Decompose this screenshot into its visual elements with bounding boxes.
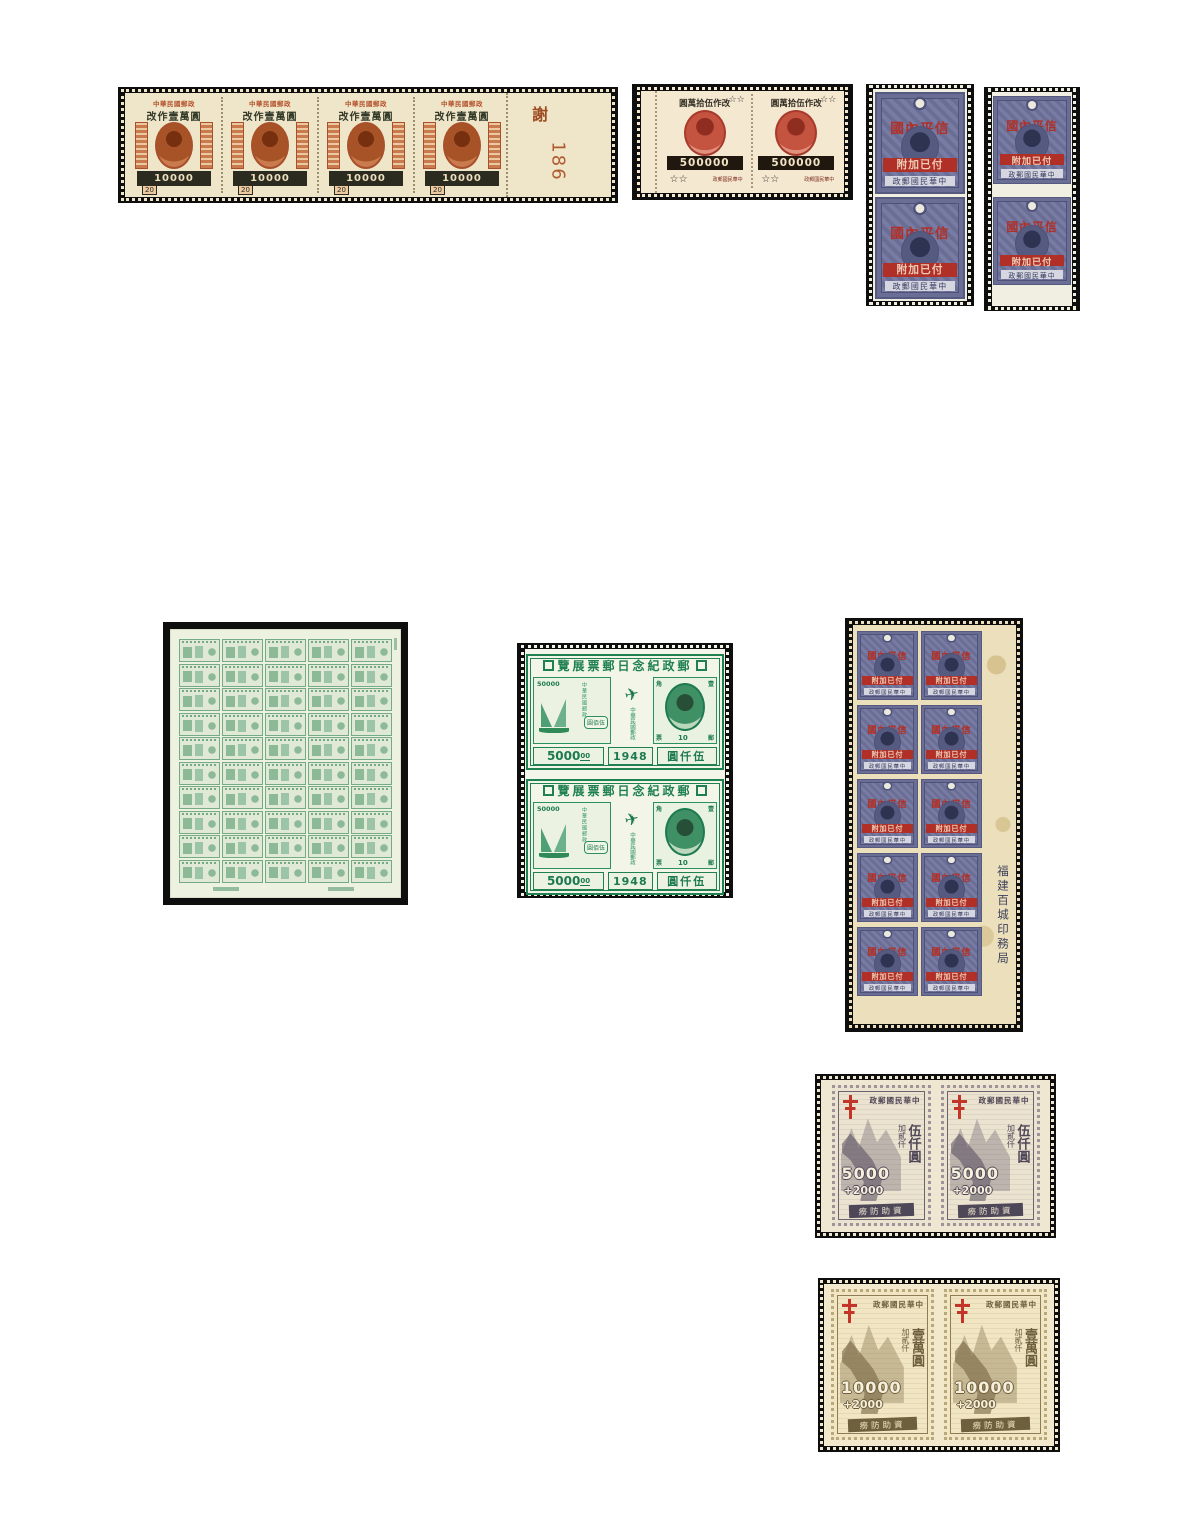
stamp-sun-yat-sen-blue-overprinted: 國內平信 附加已付 政郵國民華中 (921, 779, 982, 848)
stamp-country-header: 中華民國郵政 (130, 98, 218, 108)
stamp-sun-yat-sen-orange: 中華民國郵政 改作壹萬圓 10000 20 (418, 95, 506, 195)
year-box: 1948 (608, 872, 653, 890)
portrait-value: 10 (678, 859, 688, 867)
stamp-bottom-band: 政郵國民華中 (928, 984, 976, 991)
bottom-band-text: 政郵國民華中 (933, 688, 970, 696)
surcharge-value-box: 500000 (758, 156, 834, 170)
sheet-stamp-cell (222, 639, 263, 662)
corner-character: 壹 (708, 679, 714, 688)
sheet-paper (170, 629, 401, 898)
block-paper: 國內平信 附加已付 政郵國民華中 國內平信 附加已付 政郵國民華中 國內平信 附… (853, 625, 1016, 1024)
overprint-bar-text: 附加已付 (871, 750, 903, 760)
surcharge-value: 10000 (154, 173, 194, 184)
sheet-stamp-cell (222, 762, 263, 785)
ship-sail (554, 699, 566, 727)
sheet-stamp-cell (351, 688, 392, 711)
original-value: 20 (142, 185, 157, 195)
stamp-sun-yat-sen-orange: 中華民國郵政 改作壹萬圓 10000 20 (322, 95, 410, 195)
ship-sail (554, 824, 566, 852)
denomination-large-column: 壹萬圓 (910, 1328, 923, 1367)
sheet-stamp-cell (351, 835, 392, 858)
country-header-text: 中華民國郵政 (249, 100, 291, 108)
sheet-stamp-cell (179, 688, 220, 711)
stamp-bottom-band: 政郵國民華中 (864, 910, 912, 917)
strip-paper: 中華民國郵政 改作壹萬圓 10000 20 中華民國郵政 改作壹萬圓 10000… (125, 93, 611, 197)
star-overprint-bottom: ☆☆ (670, 174, 688, 185)
red-overprint-bar: 附加已付 (926, 972, 976, 981)
green-pair-paper: 覽展票郵日念紀政郵 50000 中華民國郵政 圓佰伍 ✈ 中華民國郵政 角 壹 (525, 649, 725, 892)
stamp-bottom-characters: 政郵國民華中 (804, 176, 834, 183)
corner-character: 票 (656, 733, 662, 742)
airplane-icon: ✈ (623, 684, 642, 707)
printer-imprint-left (213, 887, 239, 891)
star-overprint-bottom: ☆☆ (761, 174, 779, 185)
denomination-numeric: 5000 (842, 1164, 891, 1183)
stamp-bottom-band: 政郵國民華中 (1001, 270, 1062, 279)
blue-pair-stamps: 國內平信 附加已付 政郵國民華中 國內平信 附加已付 政郵國民華中 (873, 89, 967, 299)
sun-yat-sen-portrait (775, 110, 817, 156)
sheet-stamp-cell (308, 860, 349, 883)
sheet-stamp-cell (265, 713, 306, 736)
stamp-body: 50000 中華民國郵政 圓佰伍 ✈ 中華民國郵政 角 壹 票 郵 10 (533, 677, 717, 744)
sheet-stamp-cell (308, 786, 349, 809)
blue-pair-stamps: 國內平信 附加已付 政郵國民華中 國內平信 附加已付 政郵國民華中 (992, 92, 1072, 285)
red-overprint-bar: 附加已付 (862, 750, 912, 759)
sheet-stamp-cell (179, 835, 220, 858)
surcharge-value: 500000 (680, 157, 730, 169)
corner-character: 壹 (708, 804, 714, 813)
portrait-area (676, 110, 734, 156)
stamp-sun-yat-sen-blue-overprinted: 國內平信 附加已付 政郵國民華中 (875, 197, 965, 299)
sheet-stamp-cell (222, 835, 263, 858)
sheet-stamp-cell (179, 762, 220, 785)
sheet-stamp-cell (308, 639, 349, 662)
sheet-stamp-cell (351, 737, 392, 760)
red-overprint-bar: 附加已付 (883, 158, 957, 171)
red-overprint-bar: 附加已付 (883, 263, 957, 276)
anti-tb-cross-icon (952, 1095, 967, 1119)
denomination-numeric: 10000 (841, 1378, 902, 1397)
ship-hull (539, 853, 569, 858)
red-overprint-bar: 附加已付 (1000, 255, 1065, 266)
denomination-large-column: 伍仟圓 (907, 1124, 920, 1163)
bottom-band-text: 政郵國民華中 (933, 762, 970, 770)
red-overprint-bar: 附加已付 (862, 972, 912, 981)
surcharge-small-column: 加貳仟 (1014, 1328, 1022, 1367)
stamp-sun-yat-sen-blue-overprinted: 國內平信 附加已付 政郵國民華中 (993, 96, 1070, 184)
stamp-country-header: 政郵國民華中 (870, 1095, 921, 1106)
country-header-text: 中華民國郵政 (441, 100, 483, 108)
overprint-bar-text: 附加已付 (871, 898, 903, 908)
red-pair-stamps: 圓萬拾伍作改 ☆☆ 500000 ☆☆ 政郵國民華中 圓萬拾伍作改 ☆☆ 500… (657, 91, 844, 193)
surcharge-overprint-text: 改作壹萬圓 (322, 108, 410, 123)
junk-ship-inset-stamp: 50000 中華民國郵政 圓佰伍 (533, 677, 611, 744)
overprint-bar-text: 附加已付 (935, 676, 967, 686)
stamp-great-wall-anti-tb-brown: 政郵國民華中 加貳仟 壹萬圓 10000 +2000 癆防助資 (944, 1289, 1047, 1440)
denomination-cents: 00 (580, 752, 590, 761)
bottom-band-text: 政郵國民華中 (933, 910, 970, 918)
sun-yat-sen-portrait (251, 122, 289, 169)
stamp-bottom-band: 政郵國民華中 (864, 984, 912, 991)
stamp-bottom-band: 政郵國民華中 (864, 836, 912, 843)
surcharge-value-box: 10000 (329, 171, 403, 186)
junk-ship-illustration (539, 697, 569, 735)
surcharge-characters: 加貳仟 伍仟圓 (1007, 1124, 1029, 1163)
group-blue-vertical-pair-2: 國內平信 附加已付 政郵國民華中 國內平信 附加已付 政郵國民華中 (984, 87, 1080, 311)
stamp-sun-yat-sen-blue-overprinted: 國內平信 附加已付 政郵國民華中 (857, 631, 918, 700)
sheet-stamp-cell (351, 811, 392, 834)
sun-yat-sen-portrait (665, 808, 705, 856)
surcharge-overprint-text: 改作壹萬圓 (226, 108, 314, 123)
stamp-bottom-band: 政郵國民華中 (1001, 169, 1062, 178)
stamp-country-header: 中華民國郵政 (322, 98, 410, 108)
gray-pair-stamps: 政郵國民華中 加貳仟 伍仟圓 5000 +2000 癆防助資 政郵國民華中 加貳… (821, 1080, 1050, 1226)
exhibition-banner: 覽展票郵日念紀政郵 (528, 781, 722, 800)
strip-stamps: 中華民國郵政 改作壹萬圓 10000 20 中華民國郵政 改作壹萬圓 10000… (125, 93, 506, 197)
left-selvage (641, 91, 657, 193)
stamp-country-header: 中華民國郵政 (226, 98, 314, 108)
sheet-stamp-cell (222, 786, 263, 809)
anti-tb-cross-icon (843, 1095, 858, 1119)
sheet-stamp-cell (179, 664, 220, 687)
sheet-stamp-cell (351, 786, 392, 809)
sheet-stamp-cell (179, 786, 220, 809)
stamp-sun-yat-sen-blue-overprinted: 國內平信 附加已付 政郵國民華中 (921, 705, 982, 774)
sheet-stamp-cell (222, 811, 263, 834)
denomination-characters-box: 圓仟伍 (657, 872, 717, 890)
red-overprint-bar: 附加已付 (926, 676, 976, 685)
surcharge-value: 10000 (442, 173, 482, 184)
denomination-large-column: 伍仟圓 (1016, 1124, 1029, 1163)
blue-pair-paper: 國內平信 附加已付 政郵國民華中 國內平信 附加已付 政郵國民華中 (992, 92, 1072, 306)
denomination-numeric: 10000 (954, 1378, 1015, 1397)
surtax-numeric: +2000 (843, 1398, 883, 1411)
sun-yat-sen-portrait (347, 122, 385, 169)
anti-tb-slogan-band: 癆防助資 (961, 1417, 1030, 1432)
surcharge-small-column: 加貳仟 (1007, 1124, 1015, 1163)
country-header-text: 中華民國郵政 (345, 100, 387, 108)
block-stamps: 國內平信 附加已付 政郵國民華中 國內平信 附加已付 政郵國民華中 國內平信 附… (857, 631, 982, 996)
denomination-value: 5000 (547, 749, 580, 763)
anti-tb-slogan-band: 癆防助資 (848, 1417, 917, 1432)
stamp-sun-yat-sen-red: 圓萬拾伍作改 ☆☆ 500000 ☆☆ 政郵國民華中 (751, 94, 839, 188)
red-overprint-bar: 附加已付 (926, 750, 976, 759)
sheet-stamp-cell (179, 811, 220, 834)
portrait-area (423, 122, 501, 169)
corner-character: 票 (656, 858, 662, 867)
stamp-country-header: 政郵國民華中 (986, 1299, 1037, 1310)
sheet-stamp-cell (308, 688, 349, 711)
surcharge-characters: 加貳仟 壹萬圓 (1014, 1328, 1036, 1367)
surtax-numeric: +2000 (956, 1398, 996, 1411)
gray-pair-paper: 政郵國民華中 加貳仟 伍仟圓 5000 +2000 癆防助資 政郵國民華中 加貳… (821, 1080, 1050, 1232)
stamp-bottom-band: 政郵國民華中 (864, 688, 912, 695)
surcharge-value-box: 500000 (667, 156, 743, 170)
stamp-great-wall-anti-tb-brown: 政郵國民華中 加貳仟 壹萬圓 10000 +2000 癆防助資 (831, 1289, 934, 1440)
stamp-sun-yat-sen-blue-overprinted: 國內平信 附加已付 政郵國民華中 (921, 853, 982, 922)
sheet-stamp-cell (265, 811, 306, 834)
sheet-stamp-cell (265, 860, 306, 883)
stamp-bottom-band: 政郵國民華中 (885, 281, 954, 291)
sun-yat-sen-portrait (155, 122, 193, 169)
selvage-character: 謝 (532, 101, 548, 125)
sheet-stamp-cell (222, 860, 263, 883)
sheet-stamp-cell (351, 639, 392, 662)
overprint-bar-text: 附加已付 (935, 972, 967, 982)
blue-pair-paper: 國內平信 附加已付 政郵國民華中 國內平信 附加已付 政郵國民華中 (873, 89, 967, 301)
overprint-bar-text: 附加已付 (935, 898, 967, 908)
bottom-band-text: 政郵國民華中 (933, 836, 970, 844)
stamp-album-scan: { "page": {"background": "#ffffff", "des… (0, 0, 1194, 1539)
stamp-great-wall-anti-tb-gray: 政郵國民華中 加貳仟 伍仟圓 5000 +2000 癆防助資 (832, 1085, 931, 1226)
sheet-stamp-grid (179, 639, 392, 883)
airplane-icon: ✈ (623, 809, 642, 832)
sheet-stamp-cell (265, 762, 306, 785)
red-overprint-bar: 附加已付 (926, 898, 976, 907)
original-value: 20 (334, 185, 349, 195)
red-pair-paper: 圓萬拾伍作改 ☆☆ 500000 ☆☆ 政郵國民華中 圓萬拾伍作改 ☆☆ 500… (641, 91, 844, 193)
surcharge-value-box: 10000 (233, 171, 307, 186)
stamp-bottom-band: 政郵國民華中 (928, 836, 976, 843)
group-orange-strip-of-four: 中華民國郵政 改作壹萬圓 10000 20 中華民國郵政 改作壹萬圓 10000… (118, 87, 618, 203)
surcharge-small-column: 加貳仟 (901, 1328, 909, 1367)
stamp-sun-yat-sen-blue-overprinted: 國內平信 附加已付 政郵國民華中 (857, 927, 918, 996)
sheet-stamp-cell (265, 664, 306, 687)
sun-emblem-icon (1028, 202, 1036, 210)
group-anti-tb-gray-pair: 政郵國民華中 加貳仟 伍仟圓 5000 +2000 癆防助資 政郵國民華中 加貳… (815, 1074, 1056, 1238)
overprint-bar-text: 附加已付 (1012, 254, 1053, 268)
center-panel: ✈ 中華民國郵政 (614, 802, 650, 869)
denomination-numeric-box: 500000 (533, 872, 604, 890)
sun-yat-sen-portrait (443, 122, 481, 169)
overprint-bar-text: 附加已付 (935, 824, 967, 834)
denomination-large-column: 壹萬圓 (1023, 1328, 1036, 1367)
stamp-postal-day-exhibition-1948: 覽展票郵日念紀政郵 50000 中華民國郵政 圓佰伍 ✈ 中華民國郵政 角 壹 (526, 779, 724, 895)
portrait-area (767, 110, 825, 156)
sheet-stamp-cell (265, 688, 306, 711)
junk-ship-inset-stamp: 50000 中華民國郵政 圓佰伍 (533, 802, 611, 869)
sheet-stamp-cell (179, 713, 220, 736)
overprint-bar-text: 附加已付 (871, 972, 903, 982)
sheet-stamp-cell (222, 713, 263, 736)
stamp-sun-yat-sen-blue-overprinted: 國內平信 附加已付 政郵國民華中 (921, 927, 982, 996)
red-overprint-bar: 附加已付 (862, 824, 912, 833)
red-overprint-bar: 附加已付 (926, 824, 976, 833)
overprint-bar-text: 附加已付 (1012, 153, 1053, 167)
sheet-stamp-cell (308, 713, 349, 736)
surcharge-characters: 加貳仟 壹萬圓 (901, 1328, 923, 1367)
center-column-text: 中華民國郵政 (628, 832, 636, 865)
sheet-stamp-cell (222, 688, 263, 711)
anti-tb-slogan-band: 癆防助資 (957, 1203, 1022, 1218)
surcharge-overprint-text: 改作壹萬圓 (130, 108, 218, 123)
ship-sail (541, 828, 552, 852)
exhibition-banner: 覽展票郵日念紀政郵 (528, 656, 722, 675)
denomination-cents: 00 (580, 877, 590, 886)
denomination-numeric-box: 500000 (533, 747, 604, 765)
sheet-stamp-cell (351, 713, 392, 736)
year-box: 1948 (608, 747, 653, 765)
bottom-band-text: 政郵國民華中 (869, 836, 906, 844)
plate-number: 186 (548, 141, 569, 181)
bottom-band-text: 政郵國民華中 (893, 176, 948, 187)
center-panel: ✈ 中華民國郵政 (614, 677, 650, 744)
stamp-sun-yat-sen-blue-overprinted: 國內平信 附加已付 政郵國民華中 (857, 705, 918, 774)
stamp-sun-yat-sen-blue-overprinted: 國內平信 附加已付 政郵國民華中 (993, 197, 1070, 285)
commemorative-column-text: 中華民國郵政 (581, 807, 588, 843)
bottom-band-text: 政郵國民華中 (869, 762, 906, 770)
stamp-great-wall-anti-tb-gray: 政郵國民華中 加貳仟 伍仟圓 5000 +2000 癆防助資 (941, 1085, 1040, 1226)
group-red-surcharge-pair: 圓萬拾伍作改 ☆☆ 500000 ☆☆ 政郵國民華中 圓萬拾伍作改 ☆☆ 500… (632, 84, 853, 200)
surcharge-value-box: 10000 (137, 171, 211, 186)
stamp-bottom-band: 政郵國民華中 (928, 762, 976, 769)
sun-yat-sen-portrait (665, 683, 705, 731)
inset-value: 50000 (537, 805, 560, 813)
portrait-inset-stamp: 角 壹 票 郵 10 (653, 677, 717, 744)
stamp-bottom-characters: 政郵國民華中 (713, 176, 743, 183)
stamp-country-header: 中華民國郵政 (418, 98, 506, 108)
overprint-bar-text: 附加已付 (896, 157, 943, 172)
stamp-country-header: 政郵國民華中 (873, 1299, 924, 1310)
bottom-band-text: 政郵國民華中 (893, 281, 948, 292)
printer-imprint-right (328, 887, 354, 891)
denomination-value: 5000 (547, 874, 580, 888)
surcharge-value: 10000 (250, 173, 290, 184)
junk-ship-illustration (539, 822, 569, 860)
stamp-sun-yat-sen-red: 圓萬拾伍作改 ☆☆ 500000 ☆☆ 政郵國民華中 (662, 94, 748, 188)
stamp-sun-yat-sen-blue-overprinted: 國內平信 附加已付 政郵國民華中 (857, 853, 918, 922)
portrait-value: 10 (678, 734, 688, 742)
red-overprint-bar: 附加已付 (862, 676, 912, 685)
sheet-stamp-cell (222, 664, 263, 687)
stamp-country-header: 政郵國民華中 (979, 1095, 1030, 1106)
surcharge-value-box: 10000 (425, 171, 499, 186)
sheet-stamp-cell (265, 835, 306, 858)
sheet-stamp-cell (308, 835, 349, 858)
stamp-bottom-row: 500000 1948 圓仟伍 (533, 747, 717, 765)
bottom-band-text: 政郵國民華中 (1008, 270, 1055, 280)
group-green-full-sheet (163, 622, 408, 905)
corner-character: 角 (656, 804, 662, 813)
surcharge-small-column: 加貳仟 (898, 1124, 906, 1163)
sheet-stamp-cell (265, 737, 306, 760)
sheet-stamp-cell (351, 762, 392, 785)
bottom-band-text: 政郵國民華中 (1008, 169, 1055, 179)
surcharge-characters: 加貳仟 伍仟圓 (898, 1124, 920, 1163)
stamp-bottom-band: 政郵國民華中 (928, 910, 976, 917)
sheet-stamp-cell (179, 639, 220, 662)
anti-tb-slogan-band: 癆防助資 (848, 1203, 913, 1218)
sheet-stamp-cell (265, 786, 306, 809)
surcharge-overprint-text: 改作壹萬圓 (418, 108, 506, 123)
denomination-numeric: 5000 (951, 1164, 1000, 1183)
group-blue-vertical-pair-1: 國內平信 附加已付 政郵國民華中 國內平信 附加已付 政郵國民華中 (866, 84, 974, 306)
anti-tb-cross-icon (842, 1299, 857, 1323)
original-value: 20 (430, 185, 445, 195)
sheet-stamp-cell (179, 860, 220, 883)
star-overprint-top: ☆☆ (820, 95, 836, 105)
commemorative-column-text: 中華民國郵政 (581, 682, 588, 718)
bottom-band-text: 政郵國民華中 (933, 984, 970, 992)
denomination-characters-box: 圓仟伍 (657, 747, 717, 765)
red-overprint-bar: 附加已付 (1000, 154, 1065, 165)
overprint-bar-text: 附加已付 (896, 262, 943, 277)
sheet-stamp-cell (351, 664, 392, 687)
group-fujian-block-of-ten: 國內平信 附加已付 政郵國民華中 國內平信 附加已付 政郵國民華中 國內平信 附… (845, 618, 1023, 1032)
star-overprint-top: ☆☆ (729, 95, 745, 105)
red-overprint-bar: 附加已付 (862, 898, 912, 907)
sheet-stamp-cell (179, 737, 220, 760)
sheet-stamp-cell (308, 664, 349, 687)
sheet-stamp-cell (308, 762, 349, 785)
ship-hull (539, 728, 569, 733)
anti-tb-cross-icon (955, 1299, 970, 1323)
sheet-selvage-tab: 謝 186 (506, 93, 611, 197)
overprint-bar-text: 附加已付 (935, 750, 967, 760)
stamp-postal-day-exhibition-1948: 覽展票郵日念紀政郵 50000 中華民國郵政 圓佰伍 ✈ 中華民國郵政 角 壹 (526, 654, 724, 770)
brown-pair-stamps: 政郵國民華中 加貳仟 壹萬圓 10000 +2000 癆防助資 政郵國民華中 加… (824, 1284, 1054, 1440)
original-value: 20 (238, 185, 253, 195)
stamp-bottom-band: 政郵國民華中 (864, 762, 912, 769)
stamp-sun-yat-sen-blue-overprinted: 國內平信 附加已付 政郵國民華中 (875, 92, 965, 194)
sheet-stamp-cell (351, 860, 392, 883)
sun-yat-sen-portrait (684, 110, 726, 156)
bottom-band-text: 政郵國民華中 (869, 910, 906, 918)
country-header-text: 中華民國郵政 (153, 100, 195, 108)
sheet-stamp-cell (308, 811, 349, 834)
portrait-area (231, 122, 309, 169)
sheet-stamp-cell (308, 737, 349, 760)
printer-margin-inscription: 福建百城印務局 (995, 865, 1011, 967)
stamp-body: 50000 中華民國郵政 圓佰伍 ✈ 中華民國郵政 角 壹 票 郵 10 (533, 802, 717, 869)
surtax-numeric: +2000 (844, 1184, 884, 1197)
stamp-sun-yat-sen-blue-overprinted: 國內平信 附加已付 政郵國民華中 (921, 631, 982, 700)
overprint-bar-text: 附加已付 (871, 824, 903, 834)
sheet-stamp-cell (222, 737, 263, 760)
portrait-inset-stamp: 角 壹 票 郵 10 (653, 802, 717, 869)
corner-character: 角 (656, 679, 662, 688)
stamp-bottom-row: 500000 1948 圓仟伍 (533, 872, 717, 890)
corner-character: 郵 (708, 733, 714, 742)
ship-sail (541, 703, 552, 727)
stamp-bottom-band: 政郵國民華中 (885, 176, 954, 186)
sun-emblem-icon (1028, 101, 1036, 109)
brown-pair-paper: 政郵國民華中 加貳仟 壹萬圓 10000 +2000 癆防助資 政郵國民華中 加… (824, 1284, 1054, 1446)
sheet-margin-mark (394, 638, 397, 650)
stamp-sun-yat-sen-orange: 中華民國郵政 改作壹萬圓 10000 20 (226, 95, 314, 195)
green-pair-stamps: 覽展票郵日念紀政郵 50000 中華民國郵政 圓佰伍 ✈ 中華民國郵政 角 壹 (525, 649, 725, 900)
bottom-band-text: 政郵國民華中 (869, 984, 906, 992)
surtax-numeric: +2000 (953, 1184, 993, 1197)
portrait-area (327, 122, 405, 169)
inset-value: 50000 (537, 680, 560, 688)
overprint-bar-text: 附加已付 (871, 676, 903, 686)
surcharge-value: 500000 (771, 157, 821, 169)
group-green-exhibition-pair: 覽展票郵日念紀政郵 50000 中華民國郵政 圓佰伍 ✈ 中華民國郵政 角 壹 (517, 643, 733, 898)
center-column-text: 中華民國郵政 (628, 707, 636, 740)
stamp-bottom-band: 政郵國民華中 (928, 688, 976, 695)
corner-character: 郵 (708, 858, 714, 867)
stamp-sun-yat-sen-orange: 中華民國郵政 改作壹萬圓 10000 20 (130, 95, 218, 195)
inset-denomination-box: 圓佰伍 (584, 716, 608, 729)
portrait-area (135, 122, 213, 169)
surcharge-value: 10000 (346, 173, 386, 184)
sheet-stamp-cell (265, 639, 306, 662)
group-anti-tb-brown-pair: 政郵國民華中 加貳仟 壹萬圓 10000 +2000 癆防助資 政郵國民華中 加… (818, 1278, 1060, 1452)
stamp-sun-yat-sen-blue-overprinted: 國內平信 附加已付 政郵國民華中 (857, 779, 918, 848)
bottom-band-text: 政郵國民華中 (869, 688, 906, 696)
inset-denomination-box: 圓佰伍 (584, 841, 608, 854)
